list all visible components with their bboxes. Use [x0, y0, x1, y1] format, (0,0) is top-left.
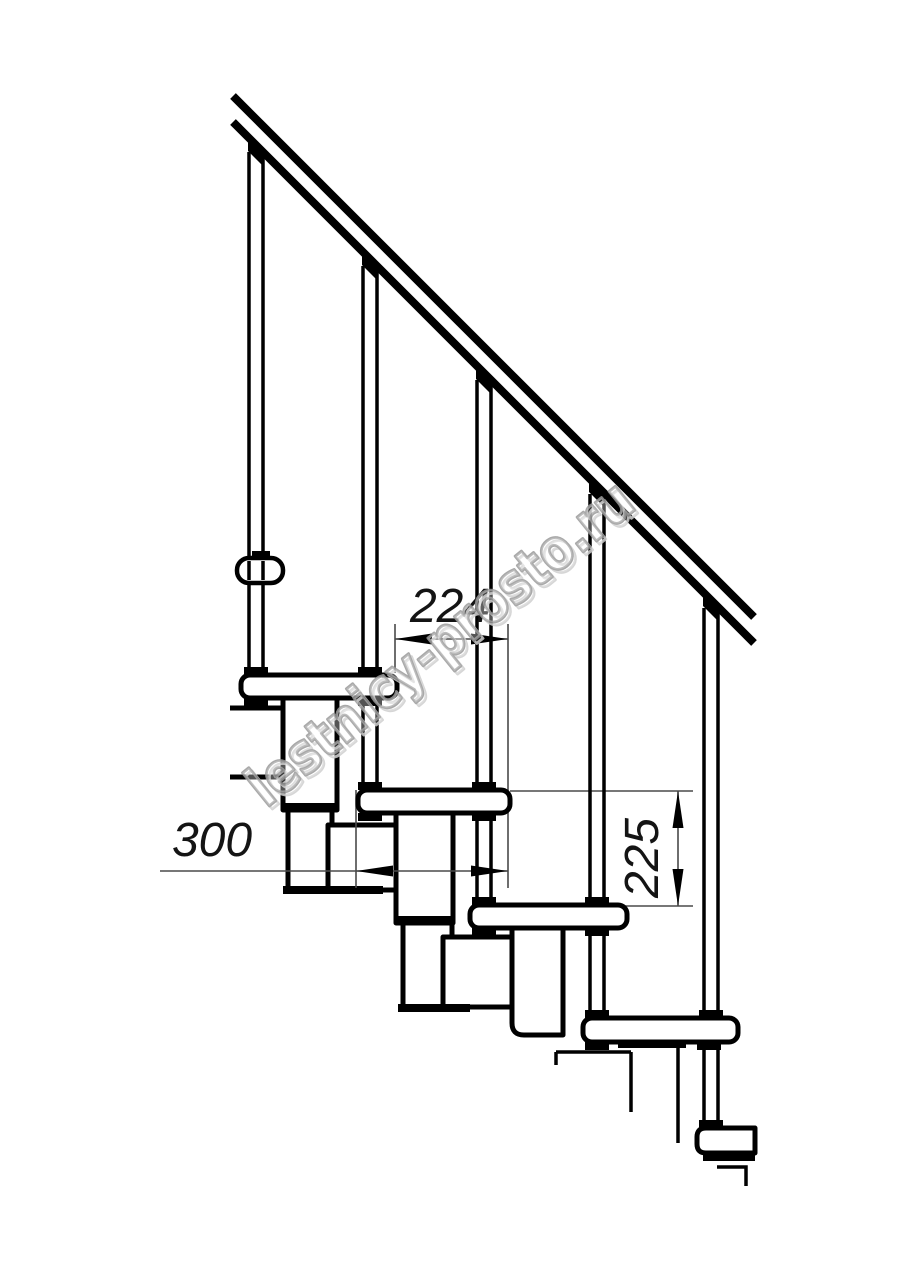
post-foot	[703, 1152, 755, 1161]
module-joint	[398, 1004, 470, 1012]
tread	[470, 905, 627, 928]
module-joint	[283, 886, 383, 894]
post-foot	[472, 928, 496, 936]
post-foot	[618, 1042, 686, 1048]
baluster	[249, 152, 263, 667]
support-module	[328, 825, 403, 890]
support-module	[443, 937, 518, 1007]
dimension-label: 300	[172, 814, 252, 867]
watermark: lestnicy-prosto.ru lestnicy-prosto.ru	[234, 468, 649, 822]
post-connector	[472, 897, 496, 905]
dimension-riser-height: 225	[616, 791, 684, 906]
tread-partial	[697, 1128, 755, 1153]
arrow-down-icon	[673, 869, 684, 906]
rail-end-bracket	[237, 558, 283, 583]
bolt-post	[590, 928, 604, 1010]
post-connector	[699, 1120, 723, 1128]
post-foot	[358, 813, 382, 821]
baluster	[363, 266, 377, 667]
staircase-drawing-svg: 224 300 225 lestnicy-prosto.ru lestnicy-…	[0, 0, 914, 1280]
post-connector	[585, 897, 609, 905]
support-module	[396, 813, 453, 923]
post-connector	[358, 782, 382, 790]
tread	[583, 1018, 738, 1042]
post-foot	[244, 698, 268, 706]
post-connector	[585, 1010, 609, 1018]
support-module	[288, 810, 332, 890]
post-connector	[472, 782, 496, 790]
post-foot	[585, 928, 609, 936]
post-connector	[699, 1010, 723, 1018]
baluster	[704, 608, 718, 1010]
post-foot	[472, 813, 496, 821]
support-module	[512, 928, 563, 1035]
dimension-label: 225	[616, 818, 669, 899]
bolt-post	[477, 813, 491, 897]
handrail-top-line	[233, 96, 754, 617]
post-connector	[244, 667, 268, 675]
watermark-text: lestnicy-prosto.ru	[234, 468, 646, 819]
arrow-up-icon	[673, 791, 684, 828]
bolt-post	[704, 1042, 718, 1120]
technical-drawing-canvas: 224 300 225 lestnicy-prosto.ru lestnicy-…	[0, 0, 914, 1280]
post-foot	[585, 1042, 609, 1050]
lower-flight-lines	[717, 1167, 746, 1186]
post-foot	[697, 1042, 721, 1050]
lower-flight-lines	[556, 1043, 678, 1143]
tread	[358, 790, 510, 813]
